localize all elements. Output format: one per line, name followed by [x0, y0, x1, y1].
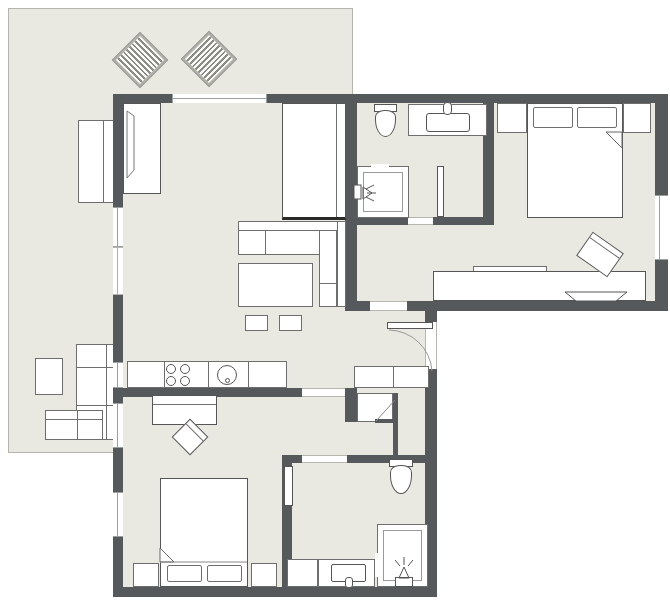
window-bedroom-right — [655, 195, 668, 260]
window-living-left — [113, 207, 123, 247]
hall-cabinet — [354, 366, 429, 388]
window-left-mid — [113, 403, 123, 448]
doorway-hall-bedroom — [370, 301, 407, 311]
bath2-door-leaf — [284, 466, 293, 506]
wardrobe-living-right — [282, 103, 346, 220]
wall-closet-thin — [393, 393, 398, 458]
kitchen-faucet-icon — [225, 378, 230, 383]
window-living-top — [172, 94, 267, 103]
doorway-bath2 — [302, 455, 347, 463]
nightstand — [251, 563, 277, 587]
sofa-cushion-line — [77, 405, 114, 406]
wall-right-lower-a — [425, 311, 437, 322]
pillow — [533, 107, 573, 128]
stove-burner-icon — [166, 364, 176, 374]
sofa-right-seat — [319, 230, 337, 307]
sofa-right-back — [337, 221, 346, 307]
bench-divider — [103, 121, 104, 202]
wall-living-right — [345, 94, 357, 311]
pillow — [577, 107, 617, 128]
shower-tray — [383, 530, 422, 581]
wall-left-1 — [113, 94, 123, 207]
desk — [152, 395, 217, 425]
desk-edge-line — [153, 404, 216, 405]
doorway-bath1 — [408, 217, 433, 225]
stove-burner-icon — [180, 376, 190, 386]
hall-closet — [357, 393, 393, 422]
wall-bath1-bottom-a — [357, 217, 408, 225]
shower-unit — [395, 577, 413, 587]
sofa-cushion-line — [77, 367, 114, 368]
outdoor-bench — [78, 120, 117, 203]
kitchen-counter-segment — [248, 361, 287, 388]
entry-door-leaf — [387, 322, 433, 329]
stool — [279, 315, 302, 331]
pillow — [207, 565, 242, 582]
sofa-cushion-line — [320, 283, 336, 284]
wardrobe-door-line — [336, 104, 337, 217]
wall-left-4 — [113, 448, 123, 492]
desk — [433, 271, 646, 301]
shower-door-gap — [371, 164, 389, 168]
wardrobe-living-left — [123, 103, 161, 194]
wall-bottom — [113, 587, 437, 597]
sofa-cushion-line — [265, 231, 266, 254]
wall-closet-left — [345, 388, 357, 422]
faucet-icon — [443, 102, 452, 115]
shower-door-gap — [375, 553, 379, 577]
sliding-terrace-door — [113, 247, 123, 295]
floor-plan — [0, 0, 670, 600]
outdoor-sofa-horizontal — [45, 410, 103, 440]
faucet-icon — [345, 577, 353, 588]
window-bedroom-left — [113, 492, 123, 537]
stove-burner-icon — [166, 376, 176, 386]
sofa-cushion-line — [77, 411, 78, 439]
wall-left-2 — [113, 295, 123, 362]
nightstand — [133, 563, 159, 587]
stove-burner-icon — [180, 364, 190, 374]
wall-hall-top-b — [407, 301, 668, 311]
shower-tray — [363, 172, 403, 212]
nightstand — [623, 103, 651, 133]
outdoor-side-table — [35, 358, 63, 395]
window-kitchen — [113, 362, 123, 388]
cabinet-divider — [393, 367, 394, 387]
wall-right-upper-a — [655, 94, 668, 195]
sink-basin-icon — [426, 113, 470, 132]
coffee-table — [238, 263, 313, 307]
closet-edge — [375, 419, 394, 423]
sofa-back-line — [106, 345, 107, 439]
doorway-bedroom-left — [302, 388, 345, 397]
sofa-seat — [238, 230, 321, 255]
sofa-back-line — [46, 419, 102, 420]
bath1-door-leaf — [437, 166, 444, 217]
vanity-cabinet — [287, 559, 318, 587]
kitchen-counter-segment — [127, 361, 165, 388]
nightstand — [497, 103, 527, 133]
stool — [245, 315, 268, 331]
pillow — [167, 565, 202, 582]
entry-door-opening — [425, 322, 437, 369]
